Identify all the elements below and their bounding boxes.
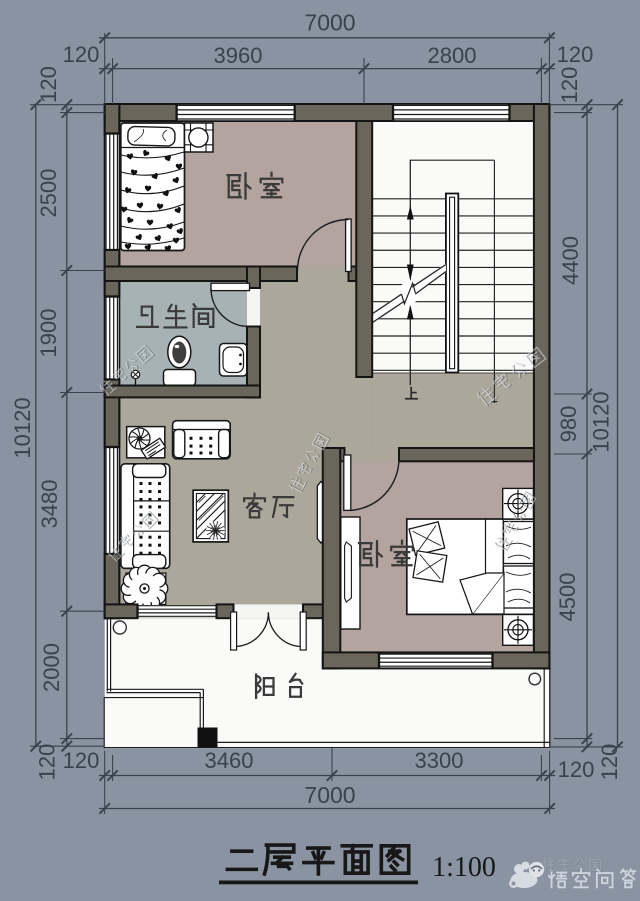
svg-text:10120: 10120: [589, 391, 614, 452]
svg-text:4400: 4400: [558, 236, 583, 285]
svg-text:980: 980: [556, 406, 581, 443]
svg-text:120: 120: [557, 42, 594, 67]
svg-text:120: 120: [36, 66, 61, 103]
svg-text:120: 120: [63, 748, 100, 773]
svg-text:1:100: 1:100: [432, 852, 496, 883]
svg-text:1900: 1900: [36, 309, 61, 358]
svg-text:3300: 3300: [415, 748, 464, 773]
svg-text:7000: 7000: [304, 782, 355, 808]
svg-text:120: 120: [557, 67, 582, 104]
svg-text:4500: 4500: [555, 573, 580, 622]
svg-text:3480: 3480: [37, 480, 62, 529]
svg-text:120: 120: [35, 744, 60, 781]
svg-text:120: 120: [558, 757, 595, 782]
svg-text:2000: 2000: [39, 643, 64, 692]
svg-text:120: 120: [63, 42, 100, 67]
svg-text:3960: 3960: [214, 43, 263, 68]
svg-text:3460: 3460: [205, 748, 254, 773]
svg-text:7000: 7000: [304, 10, 355, 36]
svg-text:120: 120: [597, 744, 622, 781]
svg-text:10120: 10120: [10, 397, 35, 458]
svg-text:2800: 2800: [428, 43, 477, 68]
svg-text:2500: 2500: [36, 169, 61, 218]
